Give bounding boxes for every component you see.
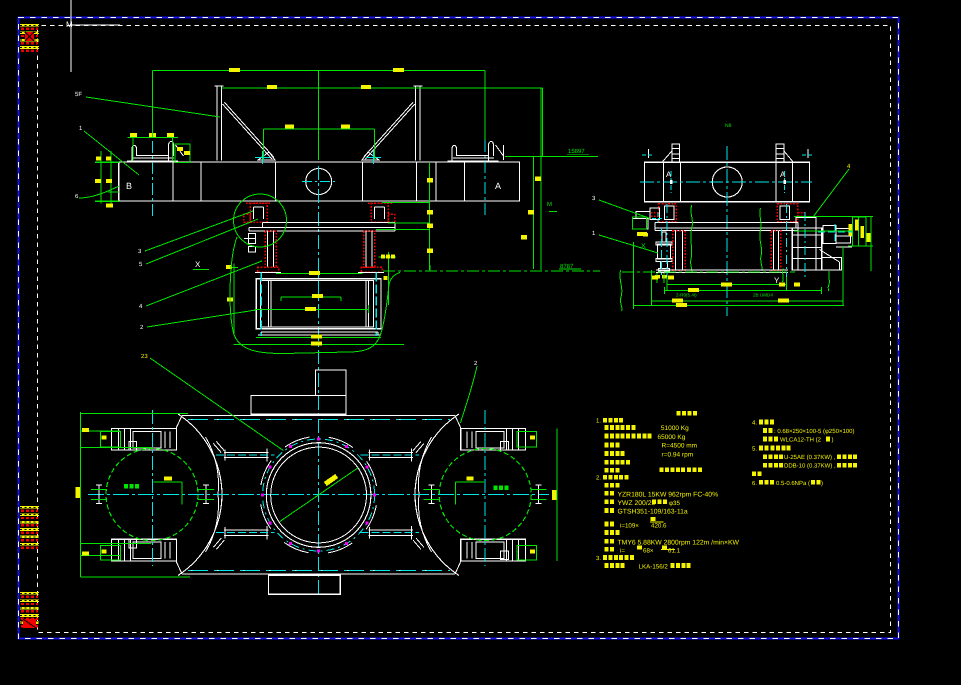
svg-text:2.: 2. [596, 475, 601, 482]
svg-text:65000 Kg: 65000 Kg [658, 434, 686, 441]
svg-text:U-25AE (0.37KW) ,: U-25AE (0.37KW) , [784, 454, 836, 461]
svg-text:2B UMD4: 2B UMD4 [753, 293, 773, 298]
svg-text:68×: 68× [643, 548, 654, 555]
svg-text:: 0.68×250×100-5 (φ250×100): : 0.68×250×100-5 (φ250×100) [774, 428, 854, 435]
svg-text:GTSH351-109/163-11a: GTSH351-109/163-11a [618, 508, 688, 515]
svg-text:0.5-0.6NPa (: 0.5-0.6NPa ( [776, 480, 810, 487]
svg-text:): ) [832, 437, 834, 444]
svg-text:WLCA12-TH (2: WLCA12-TH (2 [780, 437, 822, 444]
svg-text:M: M [66, 20, 73, 29]
svg-text:φ35: φ35 [669, 500, 680, 507]
svg-text:LKA-156/2: LKA-156/2 [639, 563, 669, 570]
svg-text:61.1: 61.1 [668, 548, 681, 555]
svg-text:23: 23 [141, 353, 148, 360]
svg-text:420.6: 420.6 [651, 523, 667, 530]
svg-text:i=109×: i=109× [620, 523, 639, 530]
svg-text:51000 Kg: 51000 Kg [661, 425, 689, 432]
svg-text:N8: N8 [725, 123, 732, 129]
svg-text:r=0.94 rpm: r=0.94 rpm [662, 451, 694, 458]
svg-text:A: A [495, 181, 501, 191]
svg-text:1.: 1. [596, 417, 601, 424]
svg-text:YWZ 200/25: YWZ 200/25 [618, 500, 656, 507]
svg-text:i=: i= [620, 548, 625, 555]
svg-text:4.: 4. [752, 419, 757, 426]
svg-text:): ) [821, 480, 823, 487]
svg-text:TMY6 5.88KW 2800rpm 122m: TMY6 5.88KW 2800rpm 122m /min×KW [618, 540, 740, 547]
svg-text:B: B [126, 181, 132, 191]
svg-text:X: X [195, 260, 201, 269]
svg-text:A: A [780, 170, 786, 179]
svg-text:3.: 3. [596, 555, 601, 562]
svg-text:YZR180L 15KW 962rpm FC-4: YZR180L 15KW 962rpm FC-40% [618, 492, 719, 499]
svg-text:6.: 6. [752, 480, 757, 487]
svg-text:DDB-10 (0.37KW) ,: DDB-10 (0.37KW) , [784, 463, 836, 470]
svg-text:5.: 5. [752, 445, 757, 452]
svg-text:M: M [547, 201, 552, 208]
svg-text:5F: 5F [75, 91, 82, 98]
svg-text:R=4500 mm: R=4500 mm [662, 443, 698, 450]
svg-text:2-R9(5.4t): 2-R9(5.4t) [676, 293, 697, 298]
